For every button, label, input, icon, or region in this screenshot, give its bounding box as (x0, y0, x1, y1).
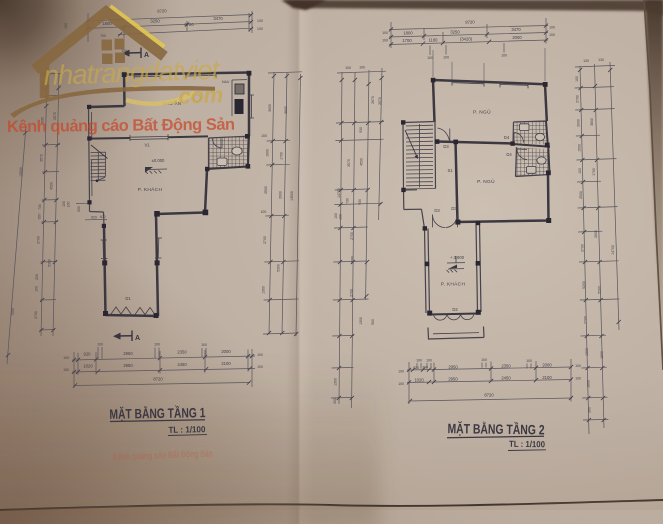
svg-text:130: 130 (598, 58, 604, 62)
svg-text:100: 100 (261, 134, 267, 138)
svg-text:2700: 2700 (576, 95, 580, 103)
svg-text:400: 400 (100, 215, 106, 219)
svg-text:100: 100 (549, 26, 555, 30)
svg-text:1700: 1700 (402, 38, 412, 43)
svg-text:2700: 2700 (34, 311, 38, 319)
svg-text:7000: 7000 (11, 308, 15, 316)
svg-text:100: 100 (257, 353, 263, 357)
svg-text:100: 100 (501, 54, 507, 58)
svg-text:1300: 1300 (585, 348, 589, 356)
svg-text:2700: 2700 (584, 316, 588, 324)
svg-text:100: 100 (63, 368, 69, 372)
svg-text:2700: 2700 (349, 289, 353, 297)
svg-text:1700: 1700 (280, 152, 284, 160)
svg-text:100: 100 (443, 56, 449, 60)
svg-text:14700: 14700 (337, 188, 341, 198)
svg-text:2450: 2450 (177, 362, 187, 367)
svg-text:2700: 2700 (350, 232, 354, 240)
svg-text:2570: 2570 (378, 97, 382, 105)
svg-text:100: 100 (398, 382, 404, 386)
svg-text:P. NGỦ: P. NGỦ (473, 109, 491, 116)
svg-text:630: 630 (38, 214, 42, 220)
svg-text:.com: .com (172, 82, 223, 109)
svg-text:+ 3.900: + 3.900 (450, 255, 465, 260)
svg-text:620: 620 (91, 216, 97, 220)
svg-text:1300: 1300 (359, 317, 363, 325)
svg-text:D4: D4 (506, 152, 512, 157)
svg-text:100: 100 (67, 202, 71, 208)
svg-text:2670: 2670 (371, 96, 375, 104)
svg-text:900: 900 (371, 319, 375, 325)
svg-text:TL : 1/100: TL : 1/100 (168, 424, 205, 435)
svg-text:100: 100 (154, 343, 160, 347)
svg-text:100: 100 (398, 369, 404, 373)
svg-text:2950: 2950 (448, 364, 458, 369)
svg-text:100: 100 (257, 365, 263, 369)
svg-text:2450: 2450 (501, 376, 511, 381)
svg-text:100: 100 (382, 31, 388, 35)
svg-text:1700: 1700 (592, 168, 596, 176)
svg-text:8720: 8720 (153, 377, 163, 382)
svg-text:14700: 14700 (611, 245, 615, 255)
svg-text:100: 100 (359, 65, 365, 69)
svg-text:1020: 1020 (414, 377, 424, 382)
svg-text:2600: 2600 (279, 191, 283, 199)
svg-text:500: 500 (77, 206, 81, 212)
svg-text:5300: 5300 (277, 264, 281, 272)
svg-text:730: 730 (38, 204, 42, 210)
svg-text:1800: 1800 (600, 351, 604, 359)
svg-text:6720: 6720 (184, 22, 194, 27)
svg-text:3470: 3470 (213, 16, 223, 21)
svg-text:A: A (135, 335, 140, 342)
svg-text:V1: V1 (144, 143, 150, 148)
svg-text:Kênh quảng cáo Bất Động Sản: Kênh quảng cáo Bất Động Sản (7, 116, 235, 136)
svg-text:P. KHÁCH: P. KHÁCH (441, 281, 466, 288)
svg-text:2350: 2350 (177, 350, 187, 355)
svg-text:100: 100 (426, 358, 432, 362)
svg-text:2950: 2950 (123, 363, 133, 368)
svg-text:(3420): (3420) (460, 36, 473, 41)
svg-text:3600: 3600 (284, 106, 288, 114)
svg-text:1800: 1800 (586, 380, 590, 388)
svg-text:1300: 1300 (262, 286, 266, 294)
svg-text:13500: 13500 (290, 191, 294, 201)
svg-text:100: 100 (578, 168, 582, 174)
svg-text:2500: 2500 (264, 186, 268, 194)
svg-text:D3: D3 (434, 208, 440, 213)
svg-text:100: 100 (97, 343, 103, 347)
svg-text:300: 300 (422, 366, 428, 370)
svg-text:4500: 4500 (50, 182, 54, 190)
svg-text:±0.000: ±0.000 (152, 158, 165, 163)
svg-text:700: 700 (100, 34, 106, 38)
svg-text:3800: 3800 (590, 118, 594, 126)
svg-text:5200: 5200 (598, 286, 602, 294)
svg-text:P. NGỦ: P. NGỦ (477, 178, 495, 185)
svg-text:2700: 2700 (37, 236, 41, 244)
svg-text:2000: 2000 (577, 119, 581, 127)
svg-text:520: 520 (413, 366, 419, 370)
svg-text:8720: 8720 (484, 392, 494, 397)
svg-text:D3: D3 (451, 206, 457, 211)
svg-text:100: 100 (63, 356, 69, 360)
svg-text:100: 100 (201, 343, 207, 347)
svg-text:2100: 2100 (542, 375, 552, 380)
svg-text:2500: 2500 (579, 191, 583, 199)
svg-text:MẶT BẰNG TẦNG 1: MẶT BẰNG TẦNG 1 (109, 405, 206, 422)
svg-text:1020: 1020 (83, 364, 93, 369)
svg-text:100: 100 (334, 213, 338, 219)
svg-text:2350: 2350 (501, 363, 511, 368)
svg-text:8720: 8720 (465, 19, 475, 24)
svg-text:2950: 2950 (448, 377, 458, 382)
svg-text:P. KHÁCH: P. KHÁCH (138, 186, 163, 193)
svg-text:100: 100 (62, 201, 66, 207)
svg-text:2000: 2000 (221, 349, 231, 354)
svg-text:100: 100 (575, 377, 581, 381)
svg-text:2100: 2100 (221, 361, 231, 366)
svg-text:930: 930 (359, 127, 363, 133)
svg-text:1300: 1300 (333, 378, 337, 386)
svg-text:1800: 1800 (403, 31, 413, 36)
svg-text:2000: 2000 (542, 363, 552, 368)
svg-text:5200: 5200 (582, 281, 586, 289)
svg-text:S1: S1 (447, 168, 453, 173)
svg-text:100: 100 (526, 359, 532, 363)
svg-text:NAU: NAU (222, 80, 230, 84)
svg-text:MẶT BẰNG TẦNG 2: MẶT BẰNG TẦNG 2 (447, 421, 545, 437)
svg-text:100: 100 (257, 27, 263, 31)
svg-text:13500: 13500 (19, 167, 23, 177)
svg-text:200: 200 (333, 398, 337, 404)
svg-text:D2: D2 (452, 307, 458, 312)
svg-text:100: 100 (549, 33, 555, 37)
svg-text:2950: 2950 (123, 351, 133, 356)
svg-text:130: 130 (583, 59, 589, 63)
svg-text:2700: 2700 (263, 236, 267, 244)
svg-text:3570: 3570 (347, 159, 351, 167)
svg-text:100: 100 (345, 66, 351, 70)
svg-text:100: 100 (338, 214, 342, 220)
svg-text:920: 920 (84, 352, 92, 357)
svg-text:3600: 3600 (268, 104, 272, 112)
svg-text:8720: 8720 (157, 8, 167, 13)
svg-text:100: 100 (481, 358, 487, 362)
svg-text:D4: D4 (504, 135, 510, 140)
svg-text:5300: 5300 (48, 259, 52, 267)
svg-text:100: 100 (575, 364, 581, 368)
svg-text:200: 200 (588, 407, 592, 413)
svg-text:3470: 3470 (511, 27, 521, 32)
svg-text:100: 100 (382, 38, 388, 42)
svg-text:100: 100 (260, 210, 266, 214)
svg-text:3250: 3250 (450, 29, 460, 34)
svg-text:1100: 1100 (428, 37, 438, 42)
svg-text:100: 100 (427, 56, 433, 60)
svg-text:1500: 1500 (577, 144, 581, 152)
svg-text:100: 100 (416, 359, 422, 363)
svg-text:2600: 2600 (594, 230, 598, 238)
svg-text:2700: 2700 (581, 244, 585, 252)
svg-text:730: 730 (346, 198, 350, 204)
svg-text:1600: 1600 (266, 149, 270, 157)
svg-text:200: 200 (35, 274, 39, 280)
svg-text:3570: 3570 (40, 154, 44, 162)
svg-text:D3: D3 (443, 144, 449, 149)
svg-text:2000: 2000 (512, 35, 522, 40)
svg-text:100: 100 (35, 286, 39, 292)
svg-text:TL : 1/100: TL : 1/100 (509, 439, 545, 450)
svg-text:5200: 5200 (351, 256, 355, 264)
svg-text:100: 100 (257, 19, 263, 23)
svg-text:D1: D1 (125, 296, 131, 301)
svg-text:100: 100 (575, 76, 579, 82)
svg-text:100: 100 (64, 23, 68, 29)
svg-text:930: 930 (358, 199, 362, 205)
svg-text:4500: 4500 (360, 158, 364, 166)
svg-text:3250: 3250 (150, 19, 160, 24)
